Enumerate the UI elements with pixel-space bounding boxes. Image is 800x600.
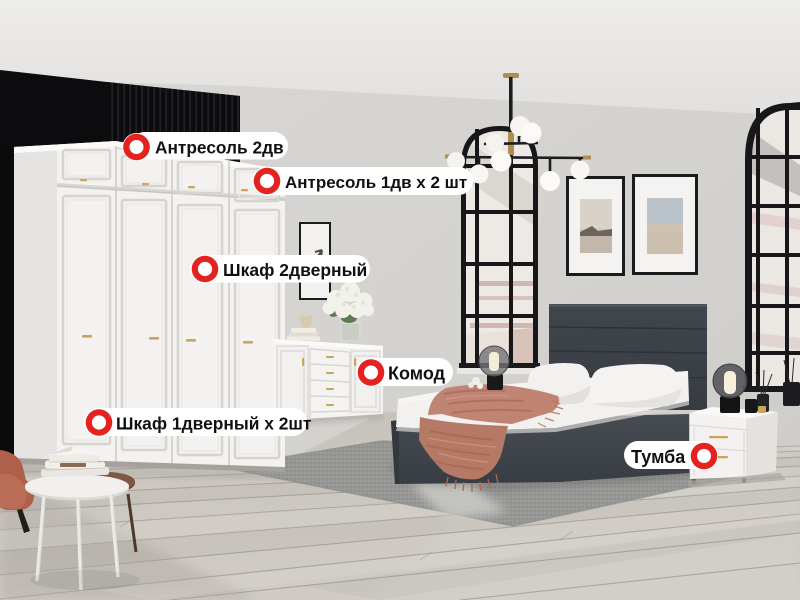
svg-text:Шкаф 1дверный х 2шт: Шкаф 1дверный х 2шт	[116, 414, 312, 434]
svg-text:Антресоль 1дв х 2 шт: Антресоль 1дв х 2 шт	[285, 173, 467, 192]
svg-text:Комод: Комод	[388, 364, 446, 384]
svg-text:Шкаф 2дверный: Шкаф 2дверный	[223, 260, 367, 280]
svg-text:Антресоль 2дв: Антресоль 2дв	[155, 138, 284, 158]
svg-text:Тумба: Тумба	[631, 447, 686, 467]
